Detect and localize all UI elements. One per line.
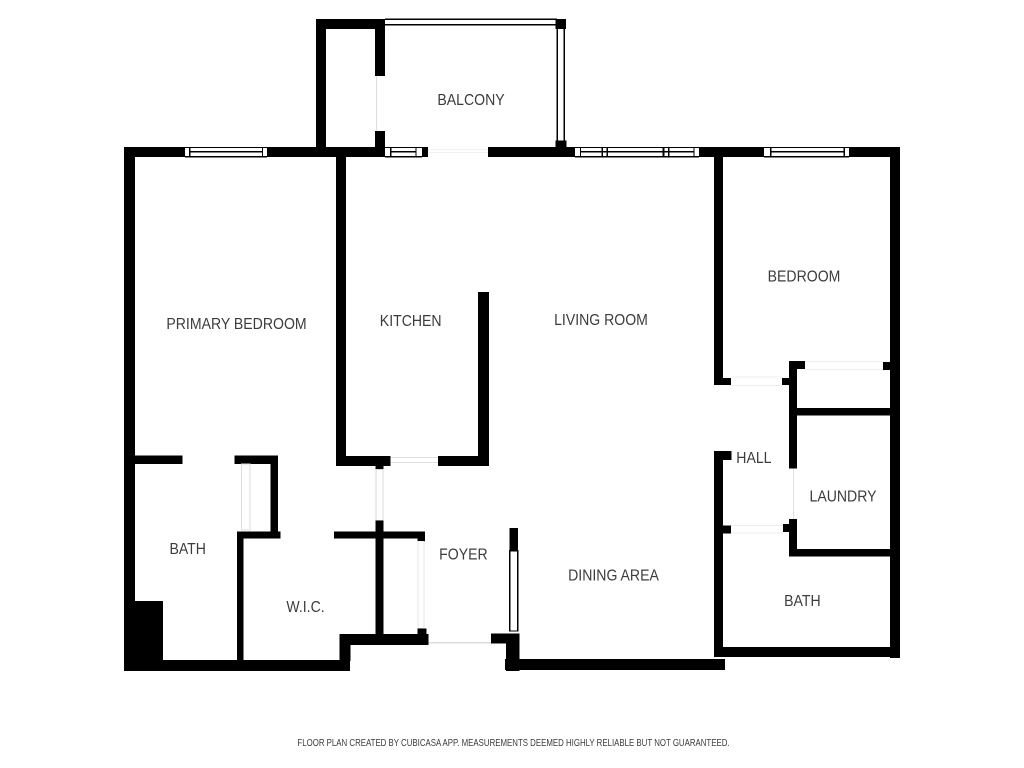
svg-text:LAUNDRY: LAUNDRY [809,488,876,506]
svg-text:BEDROOM: BEDROOM [768,268,841,286]
svg-text:LIVING ROOM: LIVING ROOM [554,311,648,329]
svg-text:BALCONY: BALCONY [437,91,504,109]
svg-text:DINING AREA: DINING AREA [568,566,660,584]
svg-text:W.I.C.: W.I.C. [286,598,324,616]
svg-text:PRIMARY BEDROOM: PRIMARY BEDROOM [166,315,306,333]
svg-text:KITCHEN: KITCHEN [380,312,442,330]
svg-text:FLOOR PLAN CREATED BY CUBICASA: FLOOR PLAN CREATED BY CUBICASA APP. MEAS… [297,737,729,748]
svg-text:HALL: HALL [736,449,771,467]
svg-text:FOYER: FOYER [439,546,488,564]
svg-text:BATH: BATH [784,592,820,610]
svg-text:BATH: BATH [169,540,205,558]
